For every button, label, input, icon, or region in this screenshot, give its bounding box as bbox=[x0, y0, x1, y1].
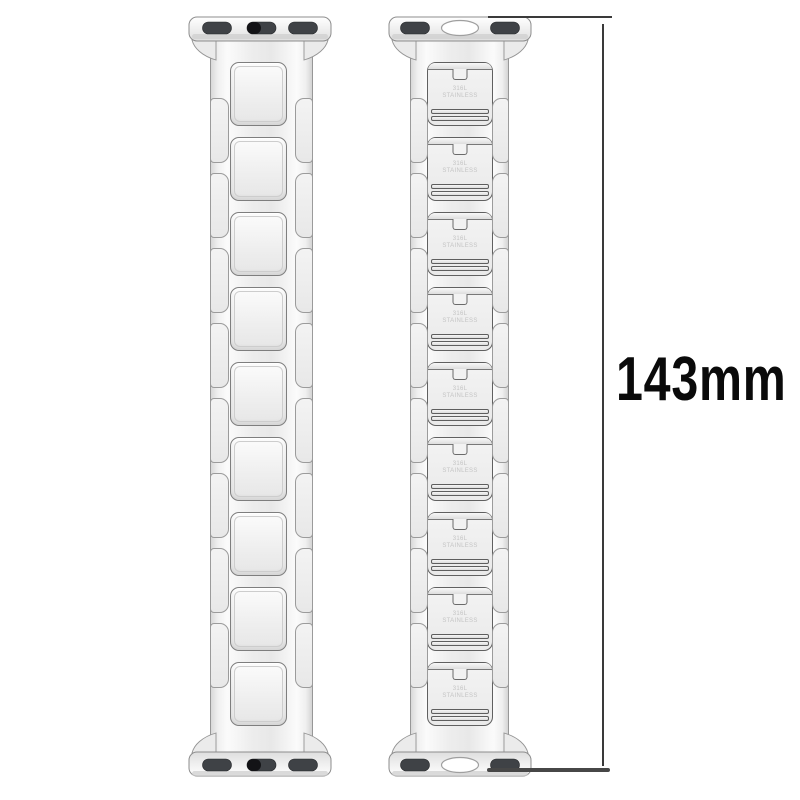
front-band-link bbox=[230, 137, 287, 201]
clasp-engraving-line1: 316L bbox=[428, 161, 492, 168]
clasp-engraving-line1: 316L bbox=[428, 236, 492, 243]
back-band-clasp: 316LSTAINLESS bbox=[427, 362, 493, 426]
clasp-fold-bar bbox=[431, 566, 489, 571]
clasp-engraving-line2: STAINLESS bbox=[428, 468, 492, 475]
back-band-clasp: 316LSTAINLESS bbox=[427, 662, 493, 726]
front-band-side-link bbox=[210, 98, 229, 163]
clasp-fold-bar bbox=[431, 116, 489, 121]
back-band-side-link bbox=[410, 398, 428, 463]
clasp-engraving-line2: STAINLESS bbox=[428, 243, 492, 250]
clasp-engraving: 316LSTAINLESS bbox=[428, 386, 492, 400]
back-band-side-link bbox=[492, 398, 510, 463]
clasp-engraving-line1: 316L bbox=[428, 386, 492, 393]
clasp-fold-bar bbox=[431, 716, 489, 721]
clasp-fold-bars bbox=[431, 332, 489, 346]
clasp-engraving-line1: 316L bbox=[428, 461, 492, 468]
back-band-clasp: 316LSTAINLESS bbox=[427, 437, 493, 501]
clasp-release-tab bbox=[453, 69, 468, 80]
clasp-fold-bars bbox=[431, 182, 489, 196]
clasp-engraving: 316LSTAINLESS bbox=[428, 686, 492, 700]
clasp-release-tab bbox=[453, 219, 468, 230]
back-band-side-link bbox=[492, 98, 510, 163]
back-band-side-link bbox=[410, 623, 428, 688]
front-band-side-link bbox=[210, 173, 229, 238]
clasp-fold-bar bbox=[431, 109, 489, 114]
clasp-engraving-line2: STAINLESS bbox=[428, 618, 492, 625]
front-band-side-link bbox=[295, 398, 314, 463]
dimension-cap-top bbox=[488, 16, 612, 18]
front-band-side-link bbox=[210, 323, 229, 388]
dimension-line-vertical bbox=[602, 24, 604, 766]
front-band-side-link bbox=[295, 548, 314, 613]
back-band-side-link bbox=[410, 548, 428, 613]
clasp-fold-bar bbox=[431, 559, 489, 564]
front-band-side-link bbox=[210, 473, 229, 538]
back-band-clasp: 316LSTAINLESS bbox=[427, 62, 493, 126]
back-band-clasp: 316LSTAINLESS bbox=[427, 287, 493, 351]
clasp-fold-bar bbox=[431, 641, 489, 646]
clasp-fold-bar bbox=[431, 334, 489, 339]
back-band-side-link bbox=[410, 173, 428, 238]
clasp-fold-bar bbox=[431, 709, 489, 714]
front-band-side-link bbox=[210, 548, 229, 613]
back-band-side-link bbox=[492, 623, 510, 688]
back-band-side-link bbox=[492, 473, 510, 538]
front-band-link bbox=[230, 662, 287, 726]
clasp-fold-bars bbox=[431, 107, 489, 121]
clasp-engraving-line1: 316L bbox=[428, 311, 492, 318]
back-band-clasp: 316LSTAINLESS bbox=[427, 137, 493, 201]
clasp-release-tab bbox=[453, 444, 468, 455]
clasp-fold-bar bbox=[431, 184, 489, 189]
front-band-side-link bbox=[210, 623, 229, 688]
clasp-release-tab bbox=[453, 369, 468, 380]
dimension-label: 143mm bbox=[616, 349, 787, 411]
clasp-fold-bar bbox=[431, 341, 489, 346]
clasp-engraving: 316LSTAINLESS bbox=[428, 161, 492, 175]
clasp-fold-bars bbox=[431, 407, 489, 421]
clasp-release-tab bbox=[453, 144, 468, 155]
clasp-engraving: 316LSTAINLESS bbox=[428, 86, 492, 100]
clasp-engraving-line2: STAINLESS bbox=[428, 93, 492, 100]
clasp-release-tab bbox=[453, 519, 468, 530]
clasp-fold-bar bbox=[431, 416, 489, 421]
clasp-engraving-line2: STAINLESS bbox=[428, 393, 492, 400]
clasp-fold-bar bbox=[431, 266, 489, 271]
clasp-fold-bars bbox=[431, 557, 489, 571]
clasp-release-tab bbox=[453, 294, 468, 305]
clasp-engraving-line1: 316L bbox=[428, 686, 492, 693]
back-band-side-link bbox=[410, 248, 428, 313]
clasp-fold-bar bbox=[431, 484, 489, 489]
front-band-side-link bbox=[210, 248, 229, 313]
front-band-link bbox=[230, 587, 287, 651]
clasp-engraving-line2: STAINLESS bbox=[428, 318, 492, 325]
front-band-side-link bbox=[295, 323, 314, 388]
clasp-engraving: 316LSTAINLESS bbox=[428, 311, 492, 325]
front-bottom-adapter bbox=[186, 721, 334, 779]
clasp-fold-bar bbox=[431, 409, 489, 414]
clasp-engraving-line1: 316L bbox=[428, 611, 492, 618]
front-bottom-adapter-shape bbox=[186, 721, 334, 779]
clasp-engraving: 316LSTAINLESS bbox=[428, 611, 492, 625]
front-band-side-link bbox=[210, 398, 229, 463]
front-band-link bbox=[230, 512, 287, 576]
clasp-fold-bar bbox=[431, 191, 489, 196]
back-band-side-link bbox=[492, 248, 510, 313]
front-band-side-link bbox=[295, 173, 314, 238]
front-band-side-link bbox=[295, 98, 314, 163]
clasp-engraving-line2: STAINLESS bbox=[428, 693, 492, 700]
clasp-engraving-line1: 316L bbox=[428, 536, 492, 543]
clasp-engraving: 316LSTAINLESS bbox=[428, 236, 492, 250]
front-band-link bbox=[230, 62, 287, 126]
clasp-engraving-line2: STAINLESS bbox=[428, 168, 492, 175]
clasp-release-tab bbox=[453, 594, 468, 605]
clasp-engraving: 316LSTAINLESS bbox=[428, 536, 492, 550]
front-band-side-link bbox=[295, 248, 314, 313]
back-band-side-link bbox=[492, 548, 510, 613]
front-band-link bbox=[230, 362, 287, 426]
back-band-side-link bbox=[410, 98, 428, 163]
back-band-clasp: 316LSTAINLESS bbox=[427, 587, 493, 651]
dimension-cap-bottom bbox=[487, 768, 610, 772]
back-band-side-link bbox=[410, 323, 428, 388]
clasp-release-tab bbox=[453, 669, 468, 680]
clasp-fold-bars bbox=[431, 257, 489, 271]
clasp-fold-bars bbox=[431, 707, 489, 721]
clasp-engraving-line2: STAINLESS bbox=[428, 543, 492, 550]
front-band-link bbox=[230, 287, 287, 351]
watch-band-product-photo: 316LSTAINLESS316LSTAINLESS316LSTAINLESS3… bbox=[0, 0, 800, 800]
clasp-fold-bars bbox=[431, 632, 489, 646]
back-band-side-link bbox=[492, 323, 510, 388]
clasp-fold-bar bbox=[431, 259, 489, 264]
clasp-fold-bars bbox=[431, 482, 489, 496]
front-band-link bbox=[230, 437, 287, 501]
back-band-side-link bbox=[410, 473, 428, 538]
clasp-fold-bar bbox=[431, 634, 489, 639]
back-band-clasp: 316LSTAINLESS bbox=[427, 212, 493, 276]
clasp-engraving: 316LSTAINLESS bbox=[428, 461, 492, 475]
back-band-clasp: 316LSTAINLESS bbox=[427, 512, 493, 576]
clasp-fold-bar bbox=[431, 491, 489, 496]
back-band-side-link bbox=[492, 173, 510, 238]
front-band-side-link bbox=[295, 473, 314, 538]
front-band-link bbox=[230, 212, 287, 276]
front-band-side-link bbox=[295, 623, 314, 688]
clasp-engraving-line1: 316L bbox=[428, 86, 492, 93]
